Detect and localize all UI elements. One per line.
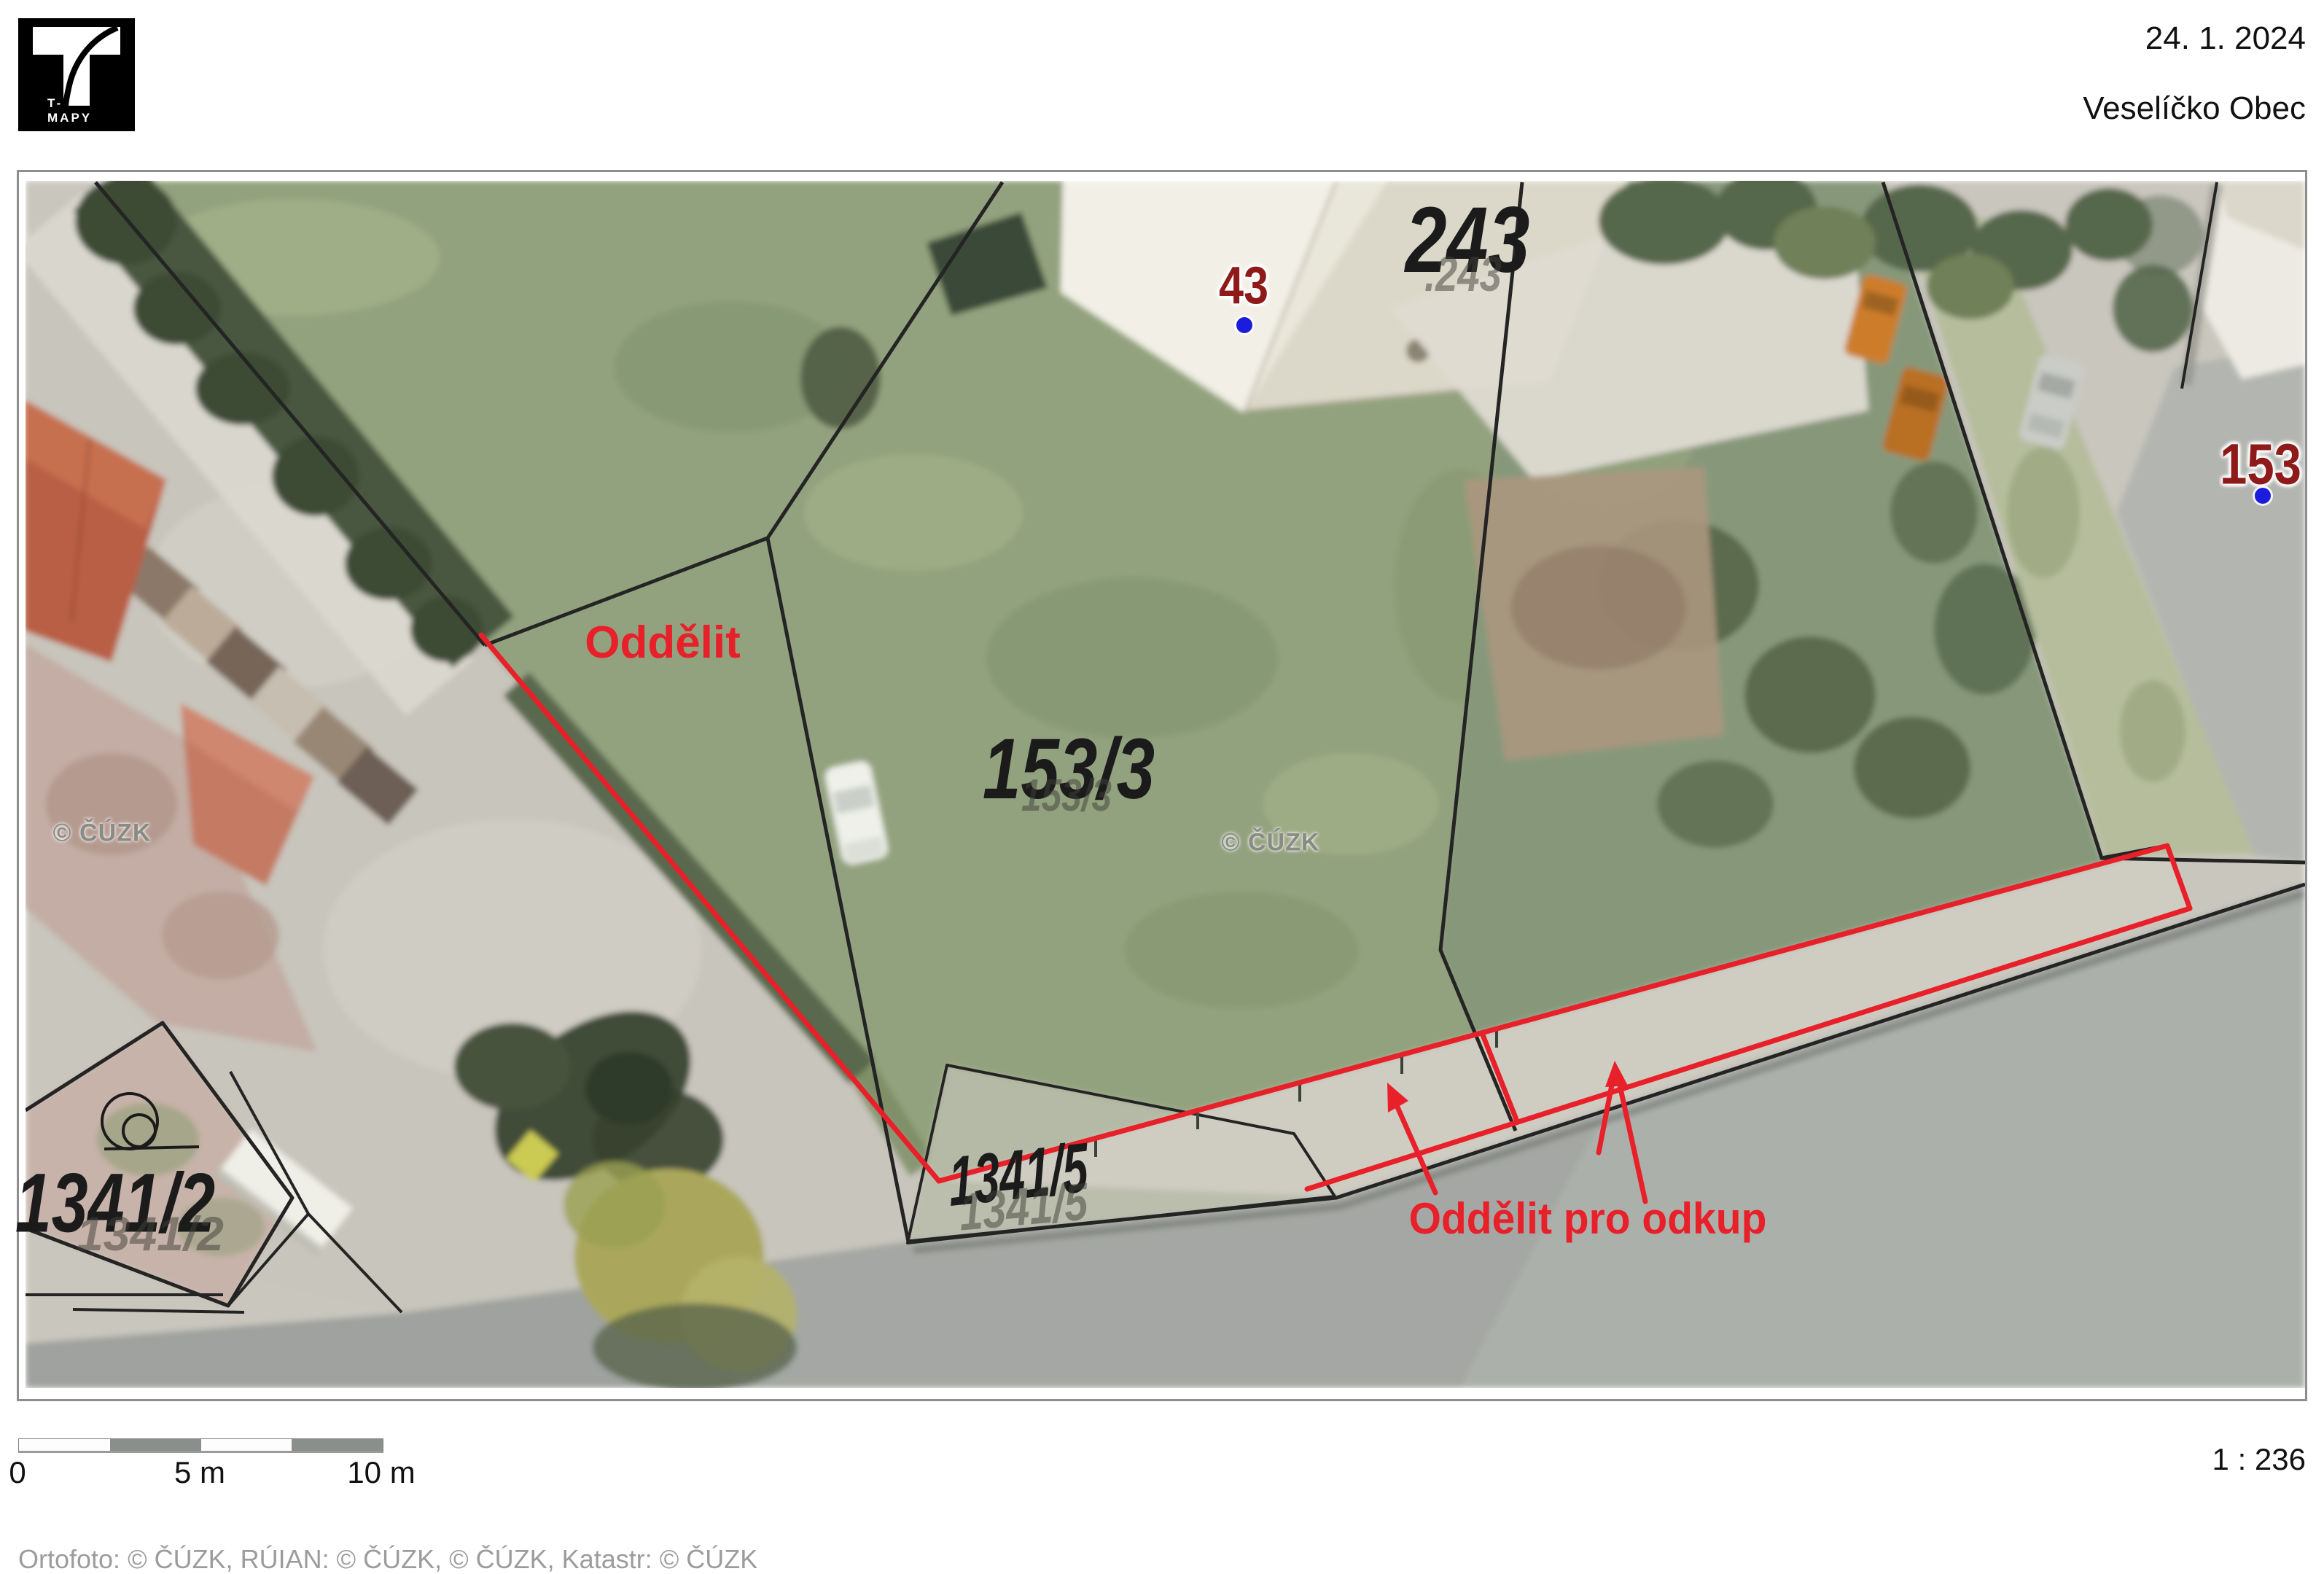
annotation-separate-for-purchase: Oddělit pro odkup [1409, 1197, 1767, 1241]
tmapy-logo-label: T-MAPY [47, 96, 106, 125]
scale-bar-segment [19, 1439, 110, 1451]
map-export-page: T-MAPY 24. 1. 2024 Veselíčko Obec [0, 0, 2324, 1574]
parcel-label-1341-5-shadow: 1341/5 [958, 1175, 1089, 1239]
parcel-label-153-3-shadow: 153/3 [1021, 774, 1112, 819]
municipality-name: Veselíčko Obec [2083, 90, 2306, 127]
cuzk-watermark-left: © ČÚZK [53, 819, 152, 848]
export-date: 24. 1. 2024 [2145, 20, 2306, 57]
parcel-label-243-shadow: .243 [1424, 249, 1502, 299]
definition-point-43 [1236, 317, 1252, 333]
scale-bar-segment [292, 1439, 383, 1451]
scale-bar-segment [110, 1439, 201, 1451]
definition-point-153 [2255, 488, 2271, 504]
house-number-43: 43 [1219, 260, 1268, 312]
parcel-label-1341-2-shadow: 1341/2 [77, 1209, 224, 1258]
attribution-text: Ortofoto: © ČÚZK, RÚIAN: © ČÚZK, © ČÚZK,… [18, 1544, 757, 1574]
scale-bar-ten: 10 m [347, 1455, 415, 1490]
map-scale-ratio: 1 : 236 [2212, 1442, 2306, 1477]
orthophoto-imagery [26, 181, 2305, 1388]
house-number-153: 153 [2220, 435, 2301, 493]
scale-bar [18, 1438, 383, 1453]
scale-bar-segment [201, 1439, 292, 1451]
cuzk-watermark-center: © ČÚZK [1222, 829, 1320, 857]
tmapy-logo: T-MAPY [18, 18, 135, 131]
annotation-separate: Oddělit [585, 620, 741, 666]
map-frame [17, 170, 2307, 1401]
orthophoto-map [26, 181, 2305, 1388]
scale-bar-five: 5 m [174, 1455, 225, 1490]
scale-bar-zero: 0 [9, 1455, 26, 1490]
